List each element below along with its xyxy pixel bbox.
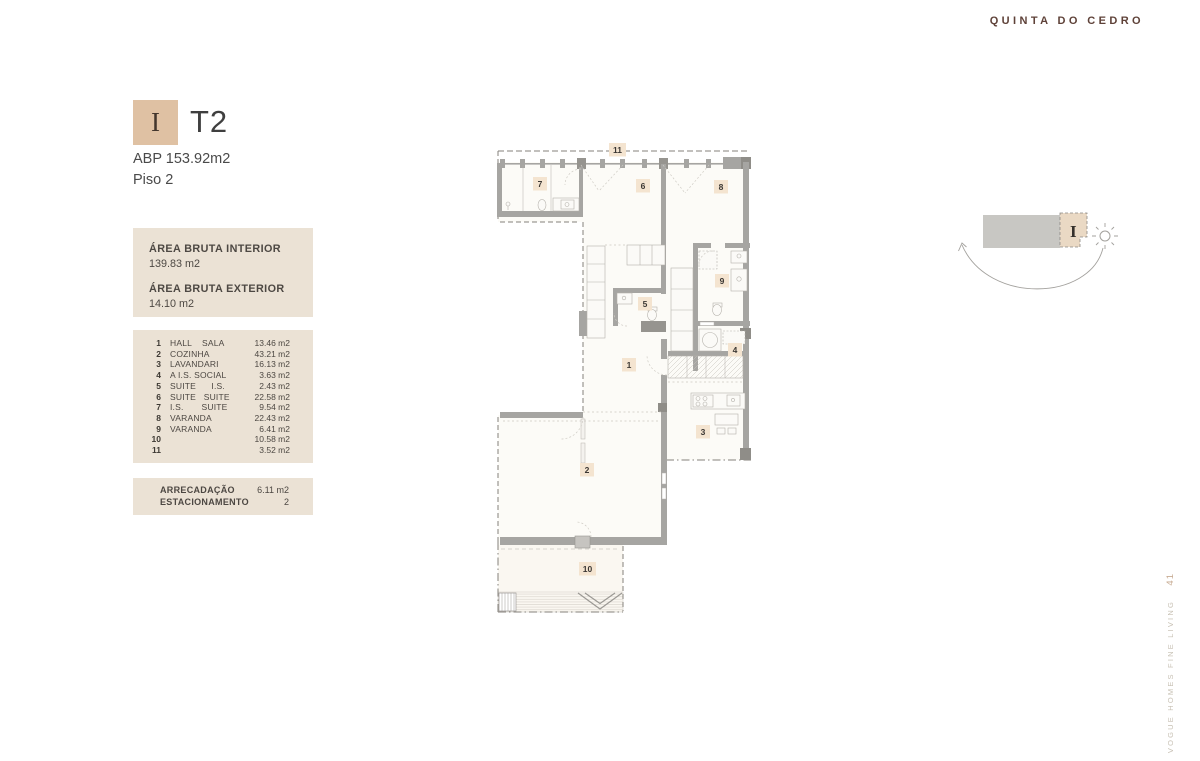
svg-text:1: 1 xyxy=(627,360,632,370)
room-number: 3 xyxy=(145,359,161,370)
room-label: VARANDA xyxy=(170,413,255,424)
svg-text:2: 2 xyxy=(585,465,590,475)
room-badge-5: 5 xyxy=(638,297,652,311)
room-area: 6.41 m2 xyxy=(259,424,290,435)
extra-label: ARRECADAÇÃO xyxy=(160,485,235,497)
unit-position-label: I xyxy=(1070,222,1077,241)
room-row: 4A I.S. SOCIAL3.63 m2 xyxy=(145,370,290,381)
room-label: I.S. SUITE xyxy=(170,402,259,413)
room-area: 3.52 m2 xyxy=(259,445,290,456)
room-area: 22.43 m2 xyxy=(255,413,290,424)
room-number: 4 xyxy=(145,370,161,381)
deck-strip xyxy=(498,592,623,612)
svg-text:11: 11 xyxy=(613,145,622,155)
exterior-area-label: ÁREA BRUTA EXTERIOR xyxy=(149,283,297,295)
room-badge-8: 8 xyxy=(714,180,728,194)
room-row: 1HALL SALA13.46 m2 xyxy=(145,338,290,349)
sun-icon xyxy=(1092,223,1118,249)
room-row: 5SUITE I.S.2.43 m2 xyxy=(145,381,290,392)
room-badge-2: 2 xyxy=(580,463,594,477)
extras-panel: ARRECADAÇÃO6.11 m2ESTACIONAMENTO2 xyxy=(133,478,313,515)
extra-label: ESTACIONAMENTO xyxy=(160,497,249,509)
room-label: A I.S. SOCIAL xyxy=(170,370,259,381)
extra-value: 2 xyxy=(284,497,289,509)
room-badge-10: 10 xyxy=(579,562,596,576)
unit-abp: ABP 153.92m2 xyxy=(133,151,230,167)
floor-plan: 1234567891011 xyxy=(495,143,753,621)
room-area: 13.46 m2 xyxy=(255,338,290,349)
room-number: 11 xyxy=(145,445,161,456)
publisher-tagline: VOGUE HOMES FINE LIVING xyxy=(1166,600,1175,753)
sun-path-arrow xyxy=(959,243,1104,289)
svg-text:4: 4 xyxy=(733,345,738,355)
room-number: 10 xyxy=(145,434,161,445)
room-row: 3LAVANDARI16.13 m2 xyxy=(145,359,290,370)
room-number: 5 xyxy=(145,381,161,392)
svg-text:9: 9 xyxy=(720,276,725,286)
room-area: 9.54 m2 xyxy=(259,402,290,413)
unit-letter-badge: I xyxy=(133,100,178,145)
svg-text:8: 8 xyxy=(719,182,724,192)
unit-floor: Piso 2 xyxy=(133,172,173,188)
room-number: 2 xyxy=(145,349,161,360)
svg-text:7: 7 xyxy=(538,179,543,189)
room-row: 113.52 m2 xyxy=(145,445,290,456)
extra-value: 6.11 m2 xyxy=(257,485,289,497)
svg-text:5: 5 xyxy=(643,299,648,309)
extra-row: ESTACIONAMENTO2 xyxy=(160,497,289,509)
room-number: 9 xyxy=(145,424,161,435)
room-label: SUITE I.S. xyxy=(170,381,259,392)
room-area: 2.43 m2 xyxy=(259,381,290,392)
room-area: 3.63 m2 xyxy=(259,370,290,381)
room-area: 22.58 m2 xyxy=(255,392,290,403)
room-label xyxy=(170,445,259,456)
room-badge-4: 4 xyxy=(728,343,742,357)
interior-area-value: 139.83 m2 xyxy=(149,258,297,270)
room-area: 16.13 m2 xyxy=(255,359,290,370)
room-number: 6 xyxy=(145,392,161,403)
room-number: 1 xyxy=(145,338,161,349)
svg-text:6: 6 xyxy=(641,181,646,191)
svg-text:10: 10 xyxy=(583,564,593,574)
room-badge-7: 7 xyxy=(533,177,547,191)
room-list-panel: 1HALL SALA13.46 m22COZINHA43.21 m23LAVAN… xyxy=(133,330,313,463)
room-area: 10.58 m2 xyxy=(255,434,290,445)
room-number: 7 xyxy=(145,402,161,413)
room-label: SUITE SUITE xyxy=(170,392,255,403)
room-label: COZINHA xyxy=(170,349,255,360)
room-row: 1010.58 m2 xyxy=(145,434,290,445)
room-label xyxy=(170,434,255,445)
room-row: 9VARANDA6.41 m2 xyxy=(145,424,290,435)
room-row: 7I.S. SUITE9.54 m2 xyxy=(145,402,290,413)
svg-text:3: 3 xyxy=(701,427,706,437)
unit-type-label: T2 xyxy=(190,104,228,140)
room-label: VARANDA xyxy=(170,424,259,435)
room-badge-1: 1 xyxy=(622,358,636,372)
room-badge-11: 11 xyxy=(609,143,626,157)
building-locator: I xyxy=(950,203,1120,323)
interior-area-label: ÁREA BRUTA INTERIOR xyxy=(149,243,297,255)
gross-areas-panel: ÁREA BRUTA INTERIOR 139.83 m2 ÁREA BRUTA… xyxy=(133,228,313,317)
room-label: HALL SALA xyxy=(170,338,255,349)
page-number: 41 xyxy=(1165,573,1176,586)
room-badge-9: 9 xyxy=(715,274,729,288)
room-row: 8VARANDA22.43 m2 xyxy=(145,413,290,424)
room-badge-3: 3 xyxy=(696,425,710,439)
room-row: 6SUITE SUITE22.58 m2 xyxy=(145,392,290,403)
room-row: 2COZINHA43.21 m2 xyxy=(145,349,290,360)
room-area: 43.21 m2 xyxy=(255,349,290,360)
brand-title: QUINTA DO CEDRO xyxy=(990,15,1144,27)
room-number: 8 xyxy=(145,413,161,424)
building-block xyxy=(983,215,1060,248)
side-footer: 41 VOGUE HOMES FINE LIVING xyxy=(1165,573,1176,753)
extra-row: ARRECADAÇÃO6.11 m2 xyxy=(160,485,289,497)
room-label: LAVANDARI xyxy=(170,359,255,370)
exterior-area-value: 14.10 m2 xyxy=(149,298,297,310)
room-badge-6: 6 xyxy=(636,179,650,193)
